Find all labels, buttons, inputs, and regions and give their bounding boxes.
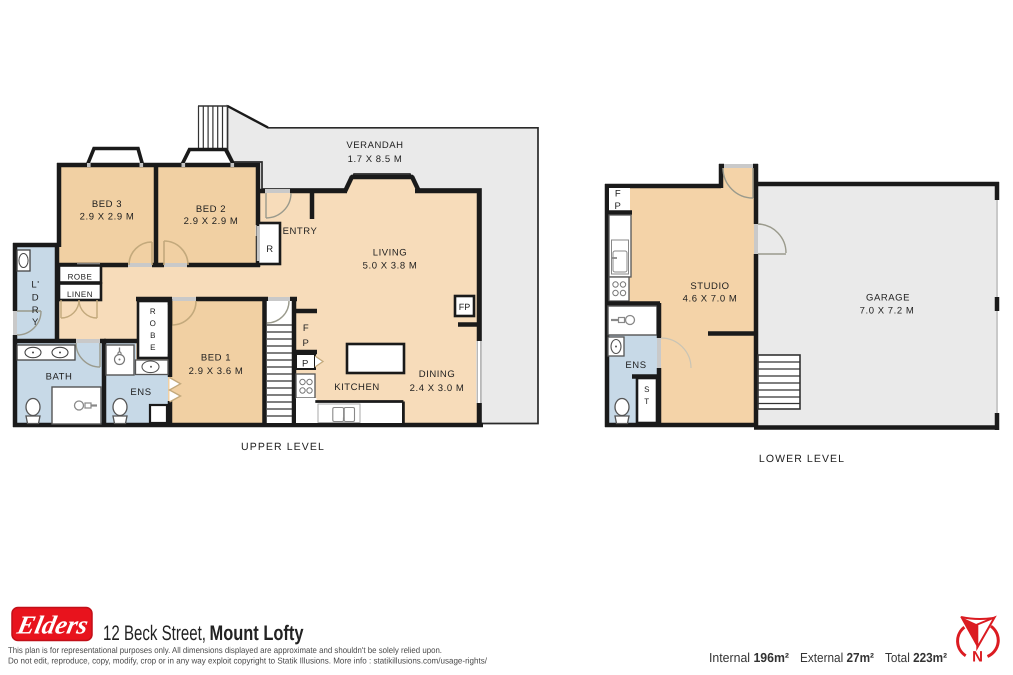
svg-text:1.7 X 8.5 M: 1.7 X 8.5 M <box>348 154 403 165</box>
svg-text:T: T <box>644 397 649 406</box>
svg-text:DINING: DINING <box>419 369 456 380</box>
svg-text:This plan is for representatio: This plan is for representational purpos… <box>8 645 442 655</box>
svg-text:Y: Y <box>32 317 39 328</box>
svg-text:FP: FP <box>459 302 471 312</box>
svg-text:D: D <box>32 293 39 304</box>
svg-text:B: B <box>150 331 156 340</box>
svg-text:F: F <box>615 189 621 200</box>
svg-text:O: O <box>150 319 157 328</box>
svg-text:ENS: ENS <box>130 387 151 398</box>
svg-text:LINEN: LINEN <box>67 290 93 299</box>
svg-text:12 Beck Street,: 12 Beck Street, <box>103 622 206 645</box>
svg-text:ENS: ENS <box>625 360 646 371</box>
svg-text:2.9 X 2.9 M: 2.9 X 2.9 M <box>80 212 135 223</box>
svg-text:S: S <box>644 385 650 394</box>
svg-text:BATH: BATH <box>46 372 73 383</box>
svg-text:R: R <box>32 305 39 316</box>
svg-text:2.9 X 2.9 M: 2.9 X 2.9 M <box>184 216 239 227</box>
svg-text:GARAGE: GARAGE <box>866 293 910 304</box>
svg-text:VERANDAH: VERANDAH <box>346 140 403 151</box>
svg-text:ROBE: ROBE <box>68 273 93 282</box>
svg-text:R: R <box>266 244 273 255</box>
svg-text:R: R <box>150 307 156 316</box>
svg-text:4.6 X 7.0 M: 4.6 X 7.0 M <box>683 294 738 305</box>
svg-text:BED 2: BED 2 <box>196 204 226 215</box>
svg-text:Elders: Elders <box>14 611 91 640</box>
svg-text:UPPER LEVEL: UPPER LEVEL <box>241 441 325 453</box>
svg-text:P: P <box>302 359 309 370</box>
svg-text:N: N <box>972 649 983 666</box>
svg-text:ENTRY: ENTRY <box>283 226 318 237</box>
svg-text:Internal 196m²: Internal 196m² <box>709 650 790 665</box>
svg-text:Do not edit, reproduce, copy,: Do not edit, reproduce, copy, modify, cr… <box>8 656 488 666</box>
svg-text:STUDIO: STUDIO <box>690 281 729 292</box>
svg-text:Mount Lofty: Mount Lofty <box>210 622 304 645</box>
svg-text:P: P <box>303 338 310 349</box>
svg-text:7.0 X 7.2 M: 7.0 X 7.2 M <box>860 306 915 317</box>
svg-text:5.0 X 3.8 M: 5.0 X 3.8 M <box>363 261 418 272</box>
svg-text:L': L' <box>31 280 39 291</box>
svg-text:BED 1: BED 1 <box>201 353 231 364</box>
svg-text:F: F <box>303 323 309 334</box>
svg-text:LIVING: LIVING <box>373 248 407 259</box>
svg-text:2.9 X 3.6 M: 2.9 X 3.6 M <box>189 366 244 377</box>
svg-text:BED 3: BED 3 <box>92 199 122 210</box>
svg-text:Total 223m²: Total 223m² <box>885 650 948 665</box>
svg-text:External 27m²: External 27m² <box>800 650 875 665</box>
svg-text:2.4 X 3.0 M: 2.4 X 3.0 M <box>410 383 465 394</box>
svg-text:E: E <box>150 343 156 352</box>
svg-text:KITCHEN: KITCHEN <box>334 382 380 393</box>
svg-text:LOWER LEVEL: LOWER LEVEL <box>759 453 845 465</box>
